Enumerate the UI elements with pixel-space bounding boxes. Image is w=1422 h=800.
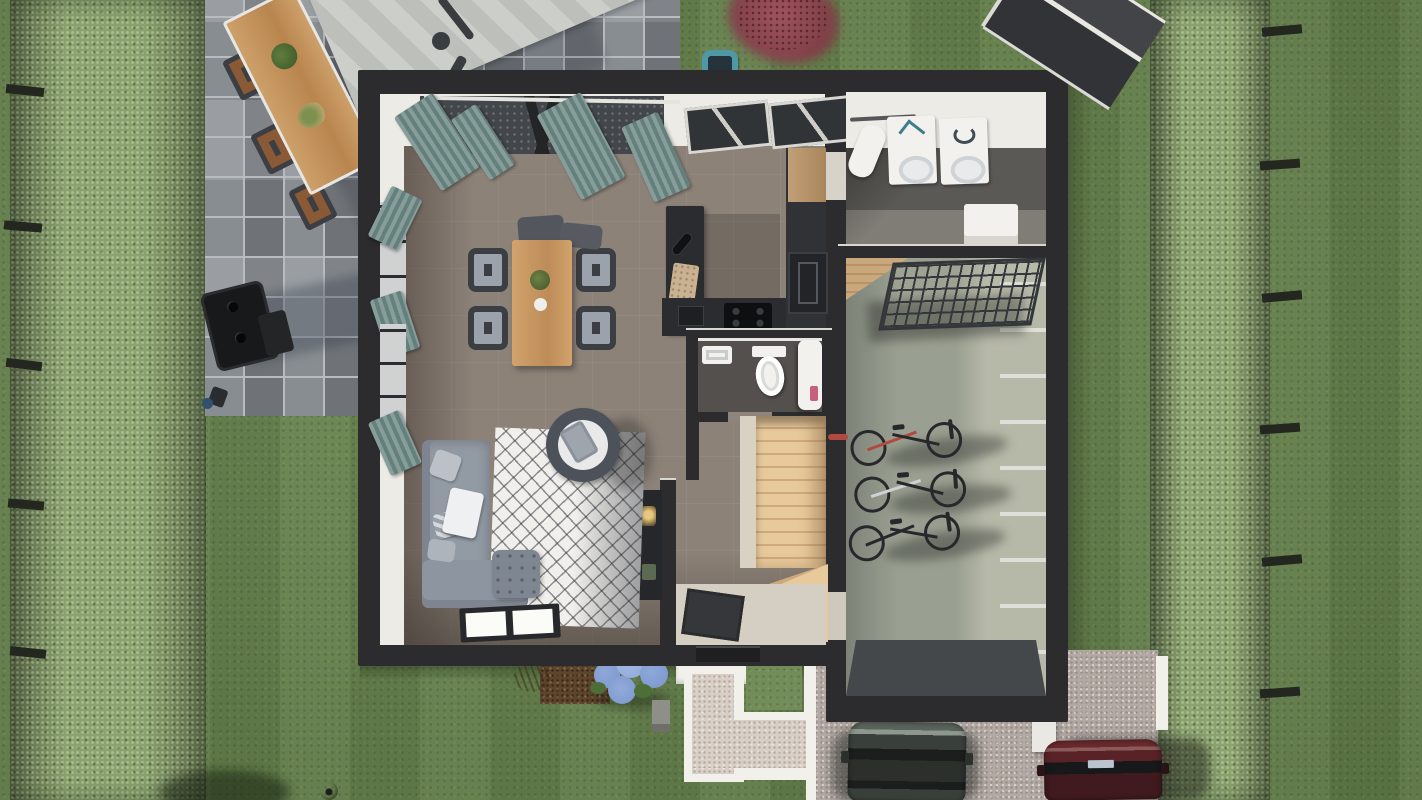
washer-door — [898, 155, 934, 184]
laundry-doorway — [826, 152, 848, 200]
car-red — [1043, 739, 1162, 800]
front-door — [696, 646, 760, 662]
door-mat — [681, 588, 745, 642]
bbq-knob — [226, 300, 239, 313]
house-shadow-right — [1068, 76, 1092, 716]
staircase — [756, 416, 826, 568]
path-post — [652, 700, 670, 732]
car-mirror — [1161, 763, 1169, 774]
table-dish — [534, 298, 547, 311]
dining-table — [512, 240, 572, 366]
bike-saddle — [892, 424, 904, 430]
driveway-curb-left — [806, 650, 816, 800]
bike-handlebar — [953, 469, 958, 489]
dining-chair — [468, 306, 508, 350]
bike-handlebar — [948, 419, 954, 439]
soccer-ball — [320, 782, 338, 800]
floor-window-frame — [459, 603, 561, 642]
dining-chair — [576, 248, 616, 292]
wire-rack — [878, 257, 1046, 330]
driveway-curb-right — [1156, 656, 1168, 730]
hydrangea-bloom — [608, 676, 636, 704]
hall-divider-wall — [660, 478, 676, 650]
path-gravel-horizontal — [692, 720, 816, 768]
bike-handle-red — [828, 434, 848, 440]
skylight-window — [768, 95, 858, 150]
hydrangea-leaf — [634, 684, 652, 698]
garage-doorway — [826, 592, 846, 640]
garden-tap-cap — [202, 398, 213, 409]
bike-saddle — [890, 518, 903, 525]
dining-chair — [576, 306, 616, 350]
dry-grass-tuft — [514, 662, 550, 692]
car-mirror — [841, 751, 849, 763]
hob — [724, 303, 772, 331]
path-grass-pocket — [746, 666, 802, 710]
wc-sink — [702, 346, 732, 364]
garden-scene — [0, 0, 1422, 800]
floor-window-pane — [512, 609, 553, 635]
kitchen-sink — [678, 306, 704, 326]
soap-bottle — [810, 386, 818, 401]
wc-wall-stub — [686, 418, 699, 480]
ottoman — [492, 550, 540, 598]
kitchen-wood-cabinet — [788, 148, 826, 202]
car-gray — [847, 721, 966, 800]
skylight-window — [684, 100, 772, 155]
car-plate — [1088, 760, 1114, 768]
washing-machine — [887, 115, 937, 185]
stair-stringer — [740, 416, 756, 568]
washer-logo — [898, 119, 925, 145]
parasol-hub — [432, 32, 450, 50]
sofa-pillow — [427, 538, 457, 563]
dryer-door — [950, 155, 986, 184]
right-hedge — [1150, 0, 1270, 800]
shelf-books — [642, 564, 656, 580]
bbq-knob — [234, 331, 247, 344]
shelf-lamp — [641, 506, 656, 526]
left-hedge — [10, 0, 206, 800]
floor-window-pane — [465, 611, 506, 637]
water-heater — [964, 204, 1018, 246]
table-plant — [293, 98, 331, 133]
bike-saddle — [897, 472, 909, 478]
car-mirror — [1037, 765, 1045, 776]
dryer-logo — [953, 126, 976, 145]
bike-wheel — [922, 512, 963, 553]
hydrangea-leaf — [590, 682, 606, 694]
dryer — [939, 117, 989, 185]
table-planter — [267, 39, 302, 74]
dining-chair — [468, 248, 508, 292]
table-plant — [530, 270, 550, 290]
garage-apron — [846, 640, 1046, 696]
oven — [788, 252, 828, 314]
wine-bottle — [671, 232, 693, 256]
car-mirror — [965, 753, 973, 765]
